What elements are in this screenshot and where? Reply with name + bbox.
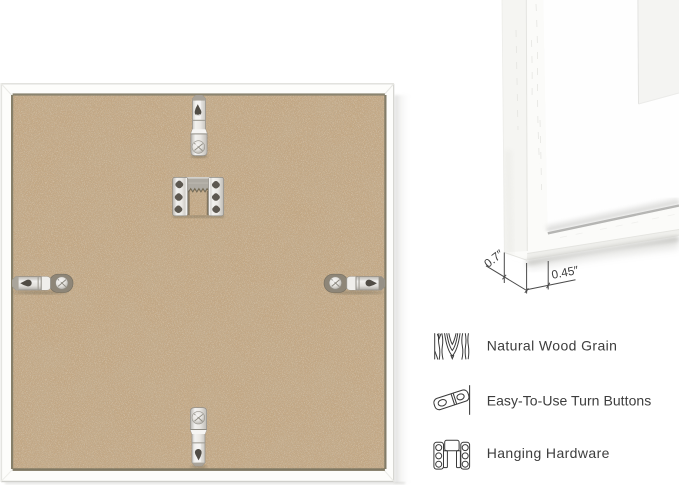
svg-text:Hanging Hardware: Hanging Hardware <box>487 445 610 461</box>
svg-text:Natural Wood Grain: Natural Wood Grain <box>487 338 618 354</box>
svg-text:Easy-To-Use Turn Buttons: Easy-To-Use Turn Buttons <box>487 392 652 408</box>
